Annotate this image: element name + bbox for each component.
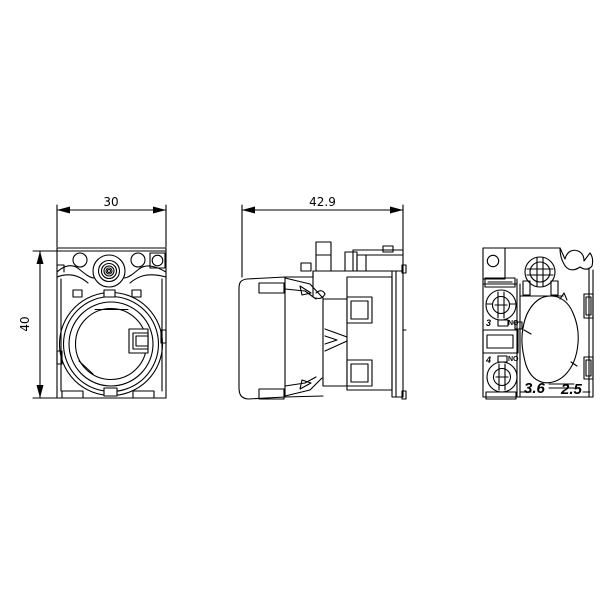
side-contact-funnel xyxy=(325,329,347,351)
front-keyway xyxy=(129,329,148,353)
top-tab xyxy=(316,242,331,271)
depth-arrow-right xyxy=(390,207,403,214)
front-view xyxy=(57,248,166,398)
depth-arrow-left xyxy=(242,207,255,214)
top-housing-lug xyxy=(383,246,393,252)
rear-corner-hole xyxy=(487,255,498,266)
front-corner-socket-hole xyxy=(152,255,163,266)
technical-drawing: 30 40 xyxy=(0,0,600,600)
screw-boss-ring xyxy=(93,255,125,287)
ring-top-notch-right xyxy=(132,290,141,297)
front-width-dimension: 30 xyxy=(57,195,166,247)
front-bottom-tab xyxy=(104,388,117,396)
side-depth-dimension: 42.9 xyxy=(242,195,403,277)
rear-plate-outline xyxy=(392,271,403,397)
front-right-foot xyxy=(133,391,154,398)
height-extension-lines xyxy=(33,251,57,398)
side-view xyxy=(239,242,406,399)
rear-cam-notches xyxy=(524,293,577,366)
side-block-top-cutout-inner xyxy=(351,301,368,319)
front-right-latch-hole xyxy=(131,253,145,267)
width-arrow-left xyxy=(57,207,70,214)
side-bezel-top-notch xyxy=(259,283,284,293)
height-arrow-bottom xyxy=(37,385,44,398)
top-housing xyxy=(353,250,403,271)
terminal-bottom-number: 4 xyxy=(485,355,491,365)
rear-top-wing xyxy=(560,248,593,270)
front-left-foot xyxy=(62,391,83,398)
terminal-screw-top-slot xyxy=(487,292,515,318)
ring-top-tab xyxy=(104,290,115,297)
module-foot xyxy=(486,392,516,399)
side-top-assembly xyxy=(285,242,403,277)
rear-cam-contour xyxy=(522,296,578,383)
depth-extension-lines xyxy=(242,205,403,277)
side-rear-plate xyxy=(392,265,406,399)
dimension-drawing-canvas: 30 40 xyxy=(0,0,600,600)
ring-top-notch-left xyxy=(73,290,82,297)
side-bottom-latch xyxy=(285,377,322,396)
side-top-latch xyxy=(285,278,325,299)
terminal-bottom-flag xyxy=(498,356,507,362)
front-height-dimension: 40 xyxy=(18,251,57,398)
castellation-left xyxy=(523,281,530,295)
keyway-inner xyxy=(136,336,148,346)
center-screw-head xyxy=(530,262,550,282)
label-window-inner xyxy=(487,335,513,348)
screw-ring xyxy=(106,268,112,274)
height-dimension-label: 40 xyxy=(18,316,32,331)
rear-plate-lines xyxy=(396,271,406,397)
castellation-right xyxy=(551,281,558,295)
front-center-screw xyxy=(93,255,125,287)
screw-center xyxy=(108,270,111,273)
rear-mold-text-left: 3.6 xyxy=(524,380,546,397)
side-block-bottom-cutout-inner xyxy=(351,364,368,382)
height-arrow-top xyxy=(37,251,44,264)
rear-mold-text-right: 2.5 xyxy=(560,381,583,398)
terminal-top-type: NO xyxy=(508,320,519,327)
terminal-screw-bottom-slot xyxy=(496,364,508,390)
front-left-latch-hole xyxy=(73,253,87,267)
rear-center-screw xyxy=(520,257,563,296)
top-small-block xyxy=(301,263,311,271)
rear-corner-step xyxy=(483,248,505,279)
width-arrow-right xyxy=(153,207,166,214)
depth-dimension-label: 42.9 xyxy=(309,195,336,209)
rear-view: 3 NO 4 NO 3.6 2.5 xyxy=(483,248,593,399)
terminal-top-number: 3 xyxy=(486,318,491,328)
rear-contact-module: 3 NO 4 NO xyxy=(483,278,520,399)
terminal-top-flag xyxy=(498,320,508,326)
terminal-bottom-type: NO xyxy=(508,356,519,363)
top-housing-step xyxy=(345,252,357,271)
width-dimension-label: 30 xyxy=(103,195,118,209)
width-extension-lines xyxy=(57,205,166,247)
top-housing-rib xyxy=(357,255,366,271)
top-step-line xyxy=(285,271,345,277)
side-bezel-outline xyxy=(239,277,285,399)
